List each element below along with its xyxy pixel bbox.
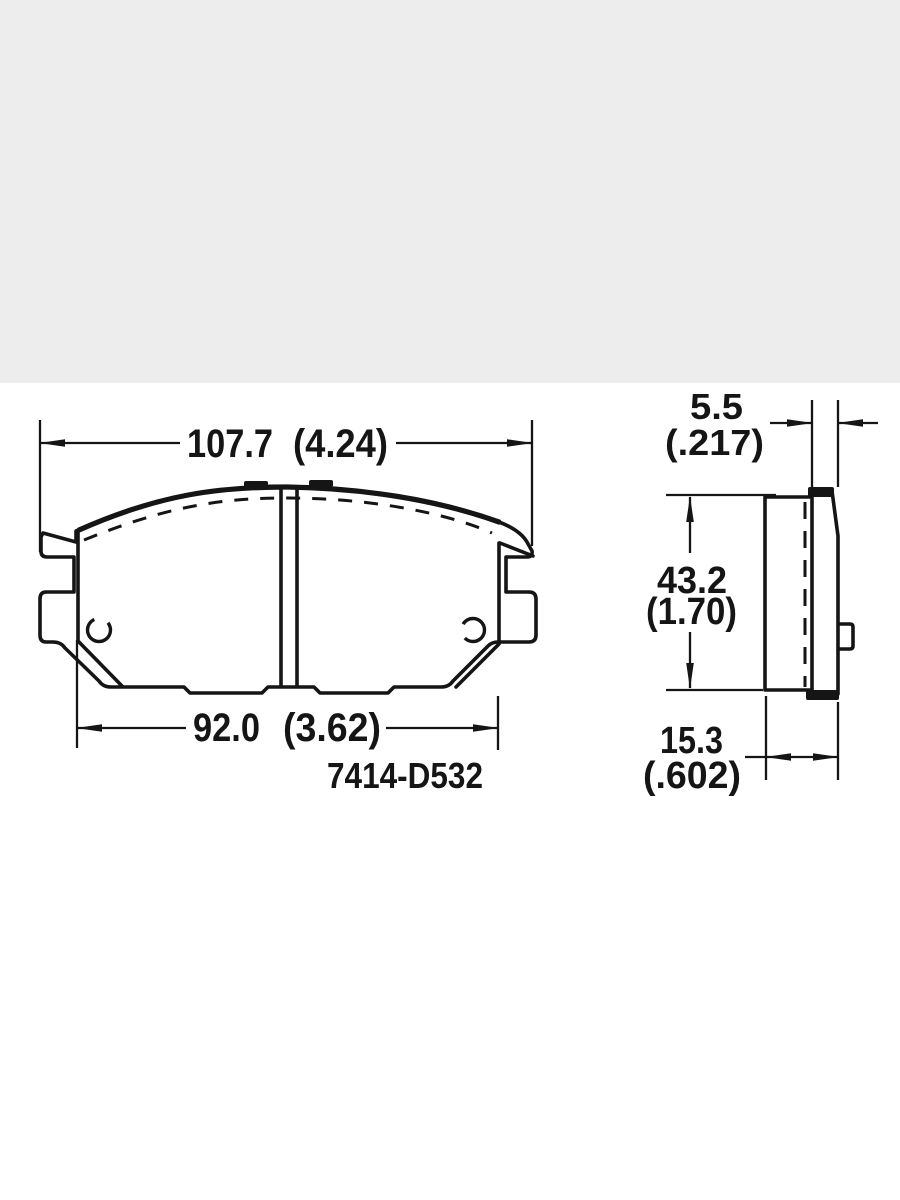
pad-top-arc	[79, 487, 499, 530]
front-view: 107.7 (4.24) 92.0 (3.62) 7414-D532	[40, 420, 536, 796]
brake-pad-drawing-page: 107.7 (4.24) 92.0 (3.62) 7414-D532	[0, 0, 900, 1200]
plate-thickness-in-label: (.217)	[665, 422, 764, 463]
side-plate-top-cap	[808, 487, 834, 497]
overall-width-in-label: (4.24)	[293, 422, 388, 466]
technical-drawing: 107.7 (4.24) 92.0 (3.62) 7414-D532	[0, 0, 900, 1200]
arc-tab-right	[309, 480, 333, 487]
dimension-plate-thickness: 5.5 (.217)	[665, 386, 878, 487]
dimension-height: 43.2 (1.70)	[646, 495, 776, 690]
friction-edge-right	[456, 543, 499, 687]
hole-right	[462, 619, 485, 642]
side-plate-right-edge	[832, 491, 838, 694]
hole-left	[88, 619, 111, 642]
dimension-pad-width: 92.0 (3.62)	[77, 640, 498, 750]
arc-tab-left	[244, 481, 268, 488]
side-plate-bottom-cap	[806, 690, 839, 700]
height-in-label: (1.70)	[646, 591, 737, 633]
dimension-total-depth: 15.3 (.602)	[643, 696, 838, 797]
total-depth-in-label: (.602)	[643, 755, 741, 797]
side-view: 5.5 (.217) 43.2 (1.70) 15.3 (.602)	[643, 386, 878, 797]
overall-width-mm-label: 107.7	[187, 422, 273, 466]
pad-width-in-label: (3.62)	[283, 706, 381, 750]
side-rear-tab	[839, 624, 853, 649]
friction-edge-left	[78, 532, 122, 686]
pad-width-mm-label: 92.0	[193, 706, 260, 750]
part-number-label: 7414-D532	[327, 755, 483, 796]
plate-thickness-mm-label: 5.5	[690, 386, 743, 427]
